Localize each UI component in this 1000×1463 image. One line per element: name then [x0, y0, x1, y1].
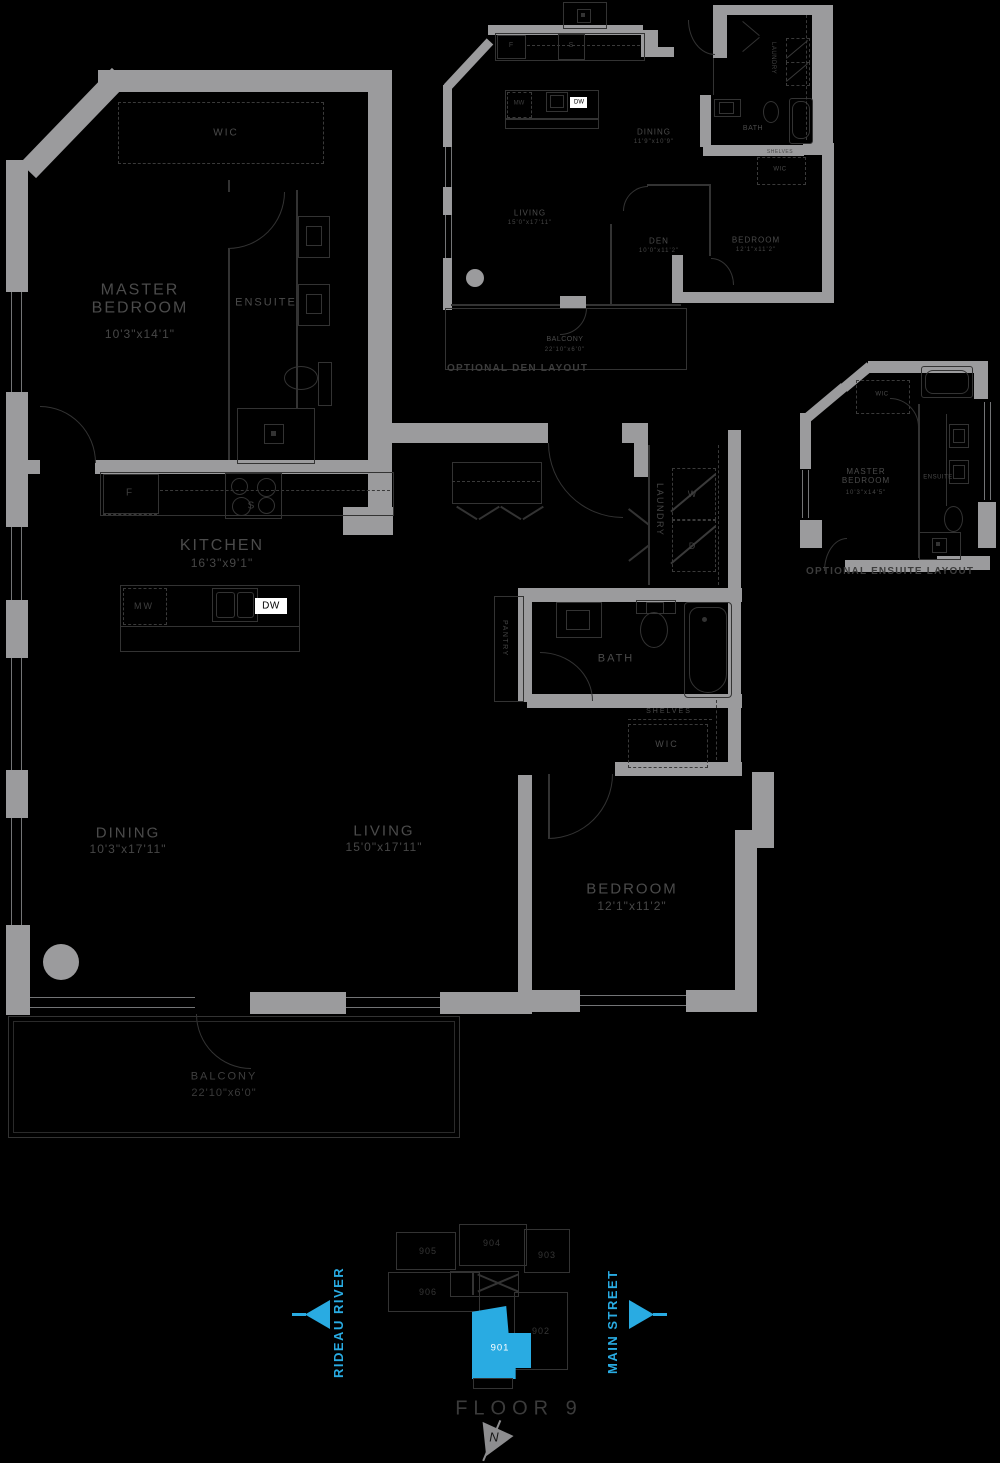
wall: [974, 361, 988, 399]
wall: [672, 255, 683, 303]
room-label-pantry: PANTRY: [501, 620, 508, 678]
shelf-line: [628, 719, 712, 720]
room-label-balcony: BALCONY: [191, 1071, 258, 1084]
closet-rod: [452, 481, 540, 482]
ledge-dot: [581, 13, 585, 17]
washer-label: W: [688, 489, 699, 499]
floorplan-sheet: WIC MASTER BEDROOM 10'3"x14'1" ENSUITE F…: [0, 0, 1000, 1463]
window: [580, 995, 686, 1006]
room-dim-living-mini: 15'0"x17'11": [508, 220, 552, 226]
entry-closet: [452, 462, 542, 504]
dishwasher-label: DW: [574, 100, 584, 107]
sink-basin: [550, 95, 564, 108]
shower-head: [936, 542, 940, 546]
room-dim-master-mini: 10'3"x14'5": [846, 490, 887, 496]
street-label-main-street: MAIN STREET: [605, 1266, 625, 1374]
wall: [822, 155, 834, 297]
stove-label: S: [569, 42, 574, 50]
bifold-door: [456, 506, 477, 520]
dashed-line: [718, 445, 719, 585]
unit-label-902: 902: [532, 1326, 550, 1336]
room-label-wic-mini: WIC: [773, 167, 786, 174]
room-dim-dining-mini: 11'9"x10'9": [634, 139, 674, 145]
door-leaf: [742, 37, 759, 52]
door-leaf: [628, 544, 649, 561]
caption-optional-ensuite: OPTIONAL ENSUITE LAYOUT: [806, 566, 974, 577]
toilet: [944, 506, 963, 532]
bifold-door: [500, 506, 521, 520]
room-label-bath-mini: BATH: [743, 125, 763, 133]
pantry-cabinet: [494, 596, 524, 702]
fridge-label: F: [509, 42, 513, 50]
wall: [98, 70, 392, 92]
door-arc: [711, 258, 734, 285]
dashed-line: [806, 15, 807, 140]
room-dim-den-mini: 10'0"x11'2": [639, 248, 679, 254]
room-label-master-mini: MASTER BEDROOM: [831, 467, 901, 485]
wall: [518, 775, 532, 992]
wall: [6, 392, 28, 527]
room-label-bedroom-mini: BEDROOM: [732, 235, 780, 244]
door-arc: [228, 192, 285, 249]
wall: [622, 423, 648, 443]
door-leaf: [628, 508, 649, 525]
window: [984, 402, 991, 500]
room-dim-dining: 10'3"x17'11": [90, 842, 167, 856]
entry-door-arc: [548, 443, 623, 518]
tub-drain: [702, 617, 707, 622]
room-label-master-bedroom: MASTER BEDROOM: [70, 282, 210, 319]
microwave-label: MW: [134, 601, 154, 611]
counter-line: [946, 414, 947, 506]
shelves-label: SHELVES: [646, 708, 692, 716]
door-arc: [548, 774, 613, 839]
unit-901-notch: [473, 1378, 513, 1389]
room-label-wic-ensuite: WIC: [875, 392, 888, 399]
room-dim-master-bedroom: 10'3"x14'1": [105, 327, 175, 341]
bathtub-inner: [925, 370, 969, 394]
room-label-living-mini: LIVING: [514, 208, 546, 217]
room-dim-bedroom-mini: 12'1"x11'2": [736, 247, 776, 253]
wall-line: [709, 186, 711, 256]
unit-label-906: 906: [419, 1287, 437, 1297]
room-label-wic: WIC: [213, 127, 238, 139]
bathtub-inner: [792, 101, 810, 139]
toilet-tank: [318, 362, 332, 406]
room-label-dining-mini: DINING: [637, 127, 671, 136]
room-label-ensuite: ENSUITE: [235, 297, 297, 310]
rideau-river-arrow: [305, 1300, 330, 1329]
burner: [258, 497, 275, 514]
unit-label-903: 903: [538, 1250, 556, 1260]
window: [30, 997, 195, 1008]
window: [11, 658, 22, 770]
wall: [6, 770, 28, 818]
room-label-bedroom: BEDROOM: [586, 880, 678, 897]
wall: [803, 143, 834, 155]
sink-basin: [237, 592, 254, 618]
wall: [560, 296, 586, 308]
wall-line: [610, 224, 612, 304]
bifold-door: [478, 506, 499, 520]
main-street-arrow-stem: [653, 1313, 667, 1316]
sink-basin: [566, 610, 590, 630]
window: [11, 527, 22, 600]
island-counter: [505, 118, 599, 129]
room-label-wic2: WIC: [655, 739, 679, 749]
wall: [735, 830, 774, 848]
toilet: [284, 366, 318, 390]
unit-label-901: 901: [491, 1344, 510, 1355]
core-divider: [472, 1271, 474, 1295]
wall: [443, 258, 452, 310]
door-arc: [540, 652, 593, 701]
room-label-kitchen: KITCHEN: [180, 537, 264, 555]
sink-basin: [306, 294, 322, 314]
wall: [28, 460, 40, 474]
burner: [257, 478, 276, 497]
wall: [978, 502, 996, 548]
toilet: [640, 612, 668, 648]
window: [346, 997, 440, 1008]
wall: [713, 13, 727, 58]
room-label-balcony-mini: BALCONY: [547, 336, 584, 344]
room-dim-balcony-mini: 22'10"x6'0": [545, 347, 586, 353]
wall-diagonal: [803, 383, 848, 423]
wall-line: [647, 184, 711, 186]
room-label-laundry-mini: LAUNDRY: [770, 42, 776, 84]
bifold-door: [522, 506, 543, 520]
sink-basin: [953, 429, 965, 443]
wall-line: [228, 180, 230, 192]
room-label-living: LIVING: [353, 822, 414, 839]
island-counter: [120, 626, 300, 652]
door-leaf: [742, 21, 759, 36]
fridge-label: F: [126, 487, 134, 499]
wall: [443, 85, 452, 147]
room-dim-kitchen: 16'3"x9'1": [191, 556, 253, 570]
wall: [6, 160, 28, 292]
floor-label: FLOOR 9: [455, 1398, 583, 1421]
entry-door-arc: [688, 20, 715, 55]
wall-line: [648, 445, 650, 585]
unit-label-904: 904: [483, 1238, 501, 1248]
window: [802, 470, 809, 518]
wall: [800, 520, 822, 548]
door-arc: [40, 406, 96, 463]
rideau-river-arrow-stem: [292, 1313, 306, 1316]
room-label-ensuite-mini: ENSUITE: [923, 475, 953, 482]
column: [466, 269, 484, 287]
unit-label-905: 905: [419, 1246, 437, 1256]
microwave-label: MW: [514, 101, 525, 108]
room-dim-living: 15'0"x17'11": [346, 840, 423, 854]
room-dim-bedroom: 12'1"x11'2": [597, 899, 666, 913]
wall: [686, 990, 757, 1012]
dishwasher-label: DW: [262, 600, 280, 612]
wall: [380, 423, 548, 443]
wall: [518, 588, 742, 602]
sink-basin: [719, 102, 734, 114]
sink-basin: [953, 465, 965, 479]
wall: [368, 70, 392, 535]
wall: [735, 848, 757, 1012]
room-label-laundry: LAUNDRY: [655, 483, 665, 563]
fridge-dashes: [103, 514, 157, 515]
dashed-line: [716, 700, 717, 760]
room-dim-balcony: 22'10"x6'0": [191, 1087, 256, 1099]
toilet: [763, 101, 779, 123]
wall: [634, 443, 648, 477]
main-street-arrow: [629, 1300, 654, 1329]
street-label-rideau-river: RIDEAU RIVER: [331, 1262, 351, 1378]
wall-diagonal: [20, 68, 128, 178]
door-arc: [890, 398, 919, 427]
stove-label: S: [248, 500, 257, 512]
wall: [530, 990, 580, 1012]
door-arc: [623, 186, 648, 211]
dryer-label: D: [689, 541, 698, 551]
window: [445, 215, 452, 258]
shelves-label-mini: SHELVES: [767, 150, 793, 156]
wall-line: [228, 248, 230, 460]
wall: [700, 95, 711, 147]
window: [445, 147, 452, 187]
room-label-den-mini: DEN: [649, 236, 669, 245]
wall: [6, 600, 28, 658]
wall: [812, 10, 833, 143]
wall: [440, 992, 532, 1014]
wall: [443, 187, 452, 215]
north-label: N: [489, 1431, 498, 1446]
wall: [657, 47, 674, 57]
wall: [683, 292, 834, 303]
sink-basin: [306, 226, 322, 246]
room-label-bath: BATH: [598, 653, 635, 666]
burner: [231, 478, 248, 495]
sink-basin: [216, 592, 235, 618]
room-label-dining: DINING: [96, 824, 161, 841]
column: [43, 944, 79, 980]
window: [11, 818, 22, 925]
window: [11, 292, 22, 392]
caption-optional-den: OPTIONAL DEN LAYOUT: [447, 363, 588, 374]
wall-diagonal: [444, 38, 494, 90]
elevator-core: [450, 1271, 519, 1297]
shower-head: [271, 431, 276, 436]
wall: [250, 992, 346, 1014]
bathtub-inner: [689, 607, 727, 693]
wall: [6, 925, 30, 1015]
wall-line: [713, 58, 714, 95]
